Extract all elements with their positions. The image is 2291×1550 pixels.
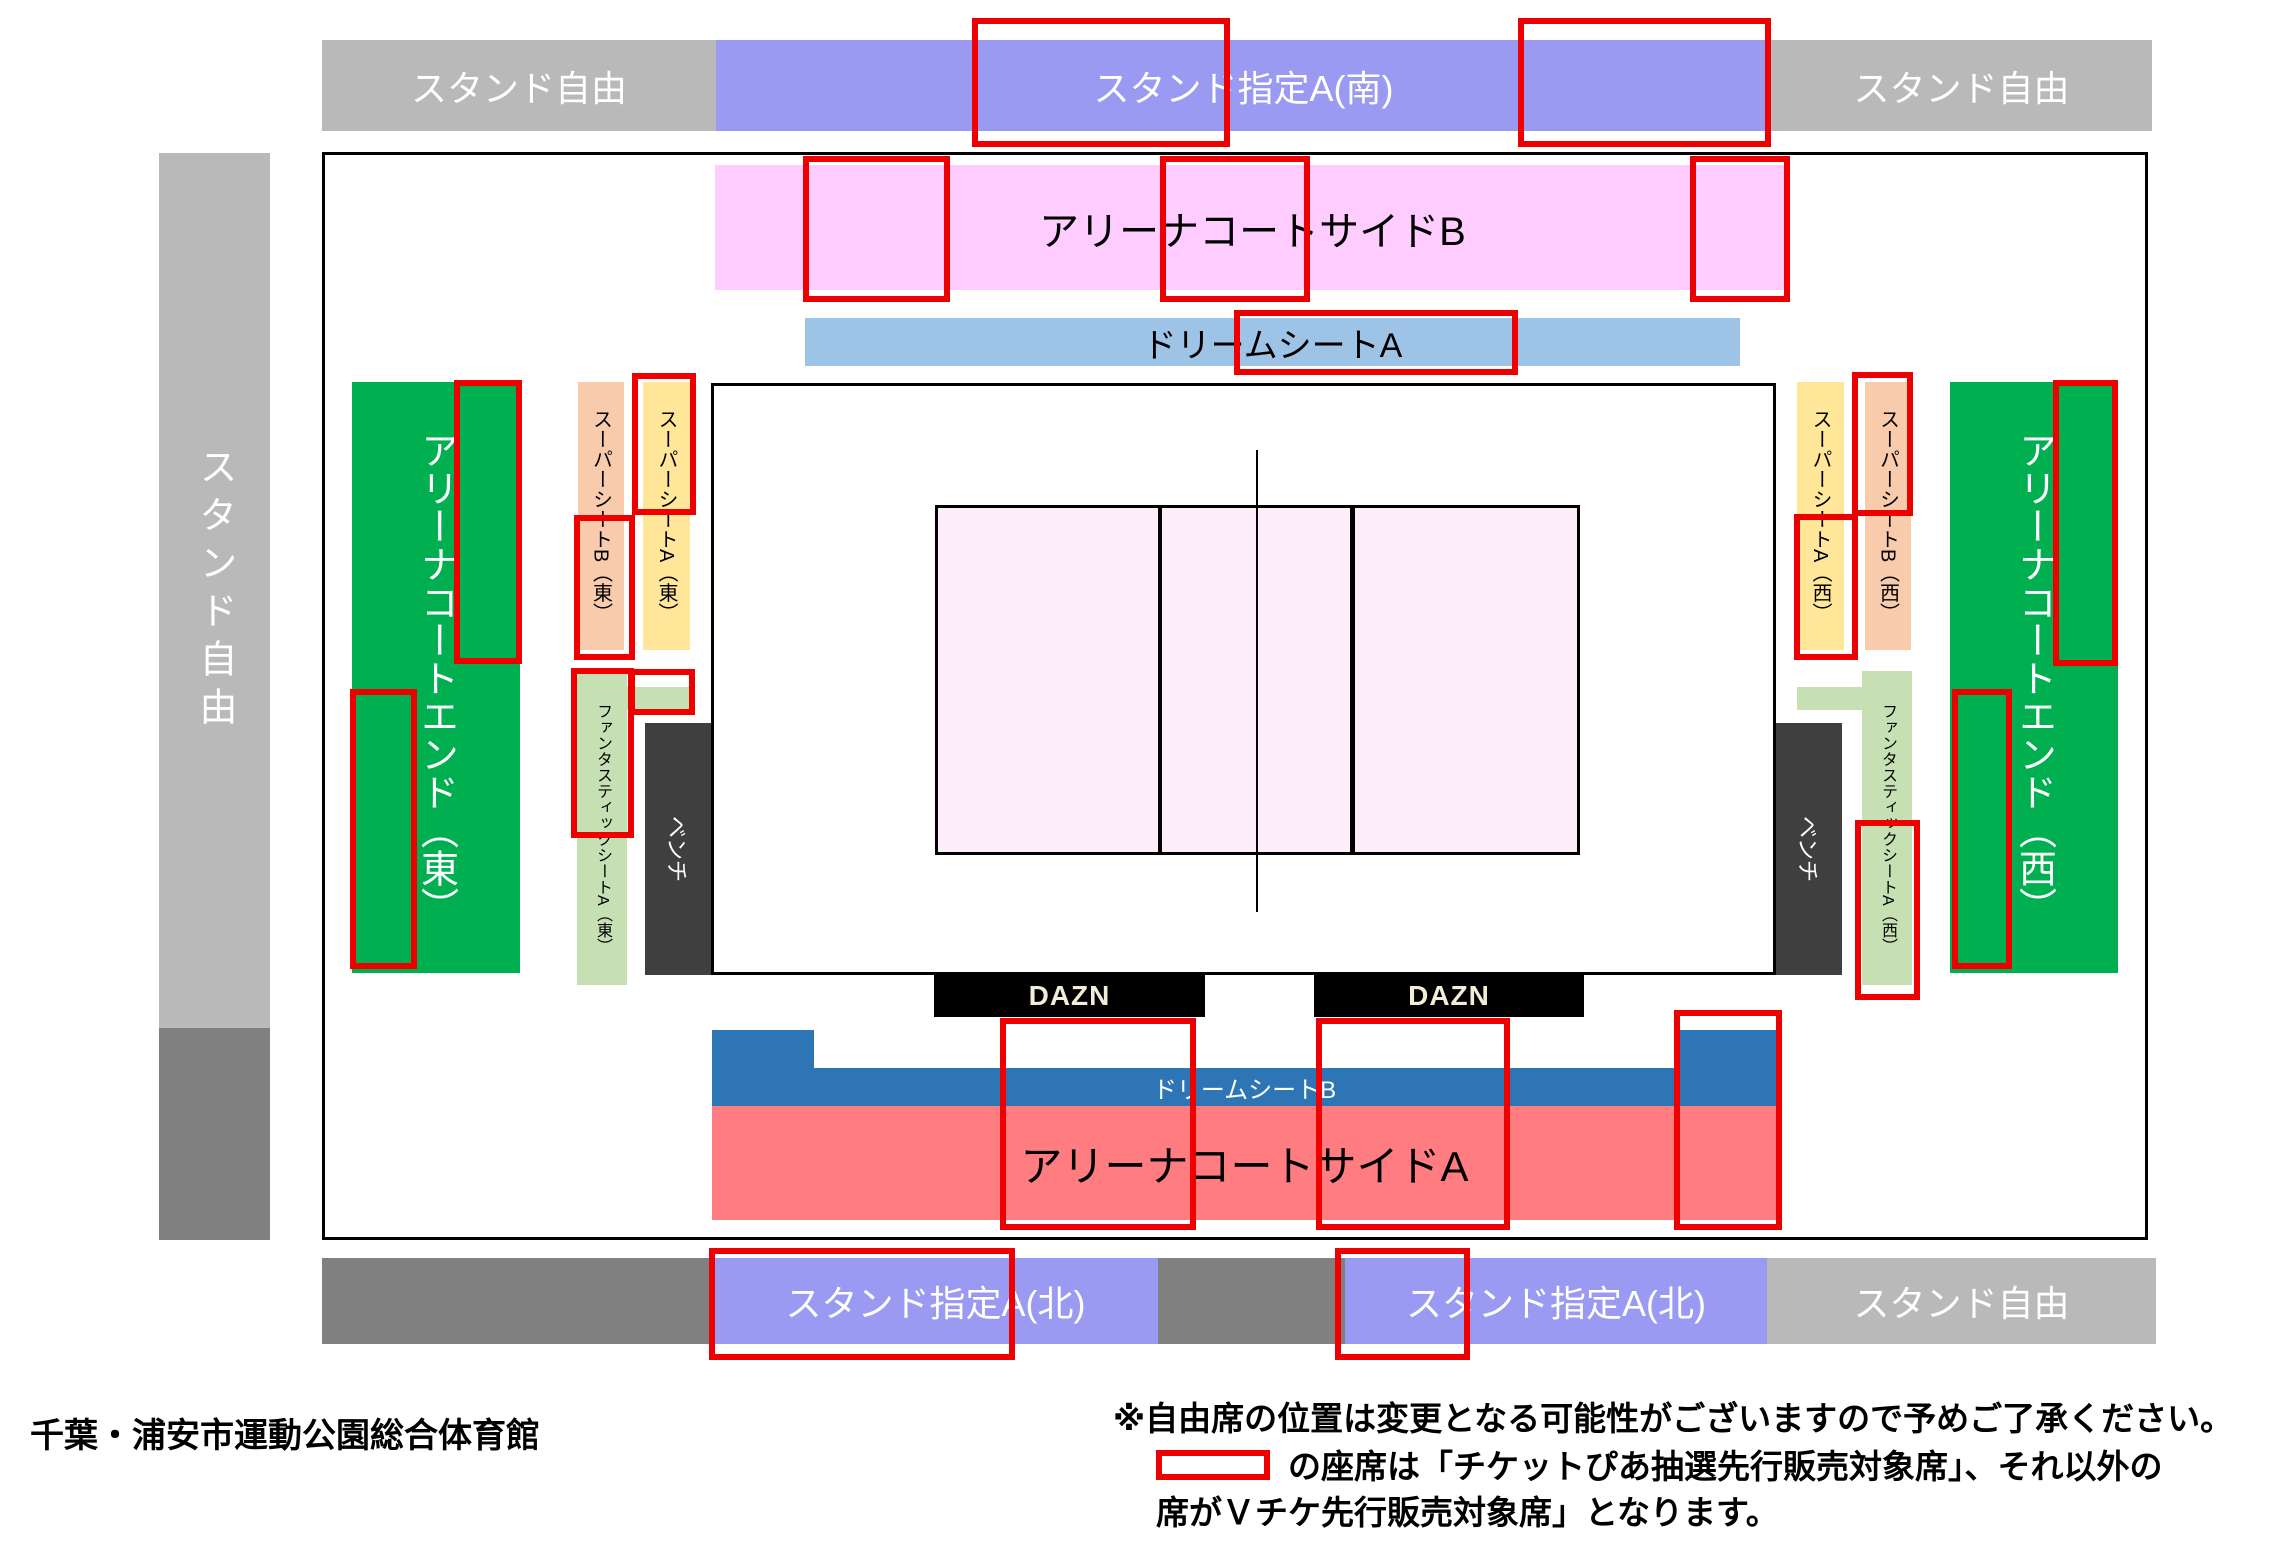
pia-outline-fantastic-west: [1855, 820, 1920, 1000]
pia-outline-super-a-west: [1794, 514, 1858, 660]
stand-north-gray-left: [322, 1258, 713, 1344]
dazn-banner-left: DAZN: [934, 975, 1205, 1017]
pia-outline-side-b-3: [1690, 156, 1790, 302]
stand-north-gray-middle: [1158, 1258, 1345, 1344]
court-attack-line-right: [1350, 505, 1355, 855]
court-net-center-line: [1256, 450, 1258, 912]
legend-note-line1: ※自由席の位置は変更となる可能性がございますので予めご了承ください。: [1113, 1392, 2233, 1440]
legend-red-swatch: [1156, 1450, 1270, 1480]
dream-seat-b-band: ドリームシートB: [712, 1068, 1777, 1106]
stand-free-south-left: スタンド自由: [322, 40, 716, 131]
stand-east-column-lower: [159, 1028, 270, 1240]
pia-outline-stand-north-1: [709, 1248, 1015, 1360]
legend-note-line2: の座席は「チケットぴあ抽選先行販売対象席」、それ以外の: [1288, 1440, 2163, 1488]
pia-outline-end-west-upper: [2053, 380, 2118, 666]
pia-outline-end-west-lower: [1952, 689, 2012, 969]
dazn-banner-right: DAZN: [1314, 975, 1584, 1017]
stand-free-east-column: スタンド自由: [159, 153, 270, 1028]
stand-free-north-right: スタンド自由: [1767, 1258, 2156, 1344]
pia-outline-stand-south-1: [972, 18, 1230, 147]
legend-note-line3: 席がＶチケ先行販売対象席」となります。: [1156, 1486, 1779, 1534]
pia-outline-super-b-west: [1852, 372, 1913, 516]
venue-name: 千葉・浦安市運動公園総合体育館: [30, 1408, 540, 1457]
pia-outline-super-b-east: [574, 515, 635, 660]
arena-court-side-a-band: アリーナコートサイドA: [712, 1106, 1777, 1220]
seat-map-canvas: スタンド自由 スタンド指定А(南) スタンド自由 スタンド自由 アリーナコートサ…: [0, 0, 2291, 1550]
fantastic-seat-a-west-nub: [1797, 687, 1862, 710]
pia-outline-super-a-east: [632, 373, 696, 515]
pia-outline-end-east-upper: [454, 380, 522, 664]
pia-outline-stand-south-2: [1518, 18, 1771, 147]
pia-outline-stand-north-2: [1335, 1248, 1470, 1360]
court-attack-line-left: [1158, 505, 1162, 855]
bench-west: ベンチ: [1776, 723, 1842, 975]
pia-outline-side-a-3: [1674, 1010, 1782, 1230]
pia-outline-end-east-lower: [350, 689, 417, 969]
bench-east: ベンチ: [645, 723, 711, 975]
dream-seat-b-step-left: [712, 1030, 814, 1070]
pia-outline-dream-a: [1234, 310, 1518, 375]
pia-outline-side-a-1: [1000, 1018, 1196, 1230]
pia-outline-side-b-1: [803, 156, 950, 302]
pia-outline-side-a-2: [1316, 1018, 1510, 1230]
pia-outline-fantastic-east-nub: [629, 669, 695, 715]
pia-outline-fantastic-east: [571, 668, 634, 838]
pia-outline-side-b-2: [1160, 156, 1310, 302]
stand-free-south-right: スタンド自由: [1771, 40, 2152, 131]
